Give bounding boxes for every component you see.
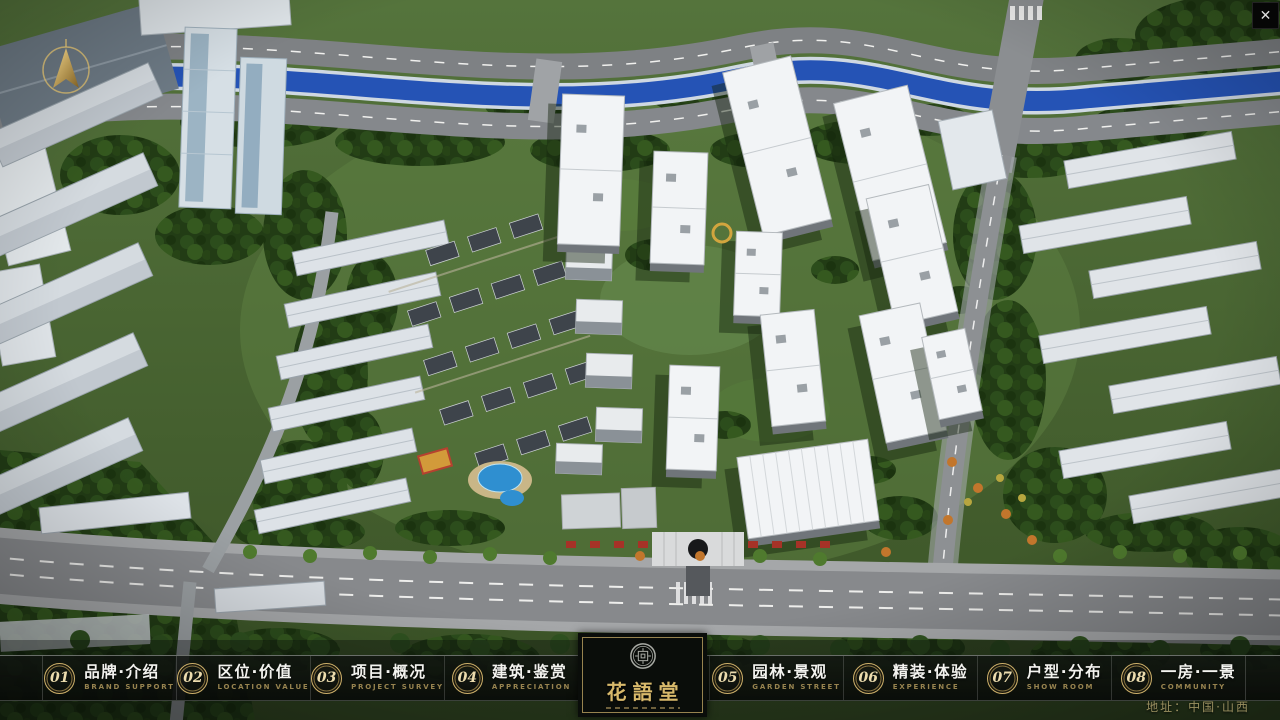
nav-number: 02: [183, 670, 202, 686]
nav-item-location-value[interactable]: 02 区位·价值LOCATION VALUE: [177, 656, 311, 700]
nav-label-en: COMMUNITY: [1161, 684, 1226, 691]
nav-label-en: SHOW ROOM: [1027, 684, 1094, 691]
nav-label-en: LOCATION VALUE: [217, 684, 309, 691]
nav-number-badge: 02: [177, 663, 208, 694]
nav-label-cn: 品牌·介绍: [84, 665, 159, 681]
nav-number: 04: [458, 670, 477, 686]
nav-left-pad: [0, 656, 43, 700]
nav-label-en: GARDEN STREET: [752, 684, 840, 691]
nav-number: 06: [859, 670, 878, 686]
nav-item-room-view[interactable]: 08 一房·一景COMMUNITY: [1111, 656, 1245, 700]
compass: [34, 36, 98, 100]
logo-ornament: [606, 707, 680, 709]
project-name: 花語堂: [601, 676, 685, 705]
nav-label-cn: 区位·价值: [217, 665, 292, 681]
nav-number-badge: 01: [44, 663, 75, 694]
nav-item-brand-intro[interactable]: 01 品牌·介绍BRAND SUPPORT: [43, 656, 177, 700]
nav-label-cn: 一房·一景: [1161, 665, 1236, 681]
nav-label-cn: 精装·体验: [893, 665, 968, 681]
nav-item-project-survey[interactable]: 03 项目·概况PROJECT SURVEY: [311, 656, 445, 700]
nav-number-badge: 03: [311, 663, 342, 694]
nav-number: 01: [50, 670, 69, 686]
close-button[interactable]: ✕: [1252, 2, 1279, 29]
nav-item-architecture[interactable]: 04 建筑·鉴赏APPRECIATION: [445, 656, 579, 700]
nav-label-cn: 园林·景观: [752, 665, 827, 681]
nav-group-right: 05 园林·景观GARDEN STREET 06 精装·体验EXPERIENCE…: [709, 656, 1245, 700]
nav-label-cn: 户型·分布: [1027, 665, 1102, 681]
vignette: [0, 0, 1280, 720]
master-plan-render: [0, 0, 1280, 720]
compass-north-arrow-icon: [53, 48, 79, 88]
nav-group-left: 01 品牌·介绍BRAND SUPPORT 02 区位·价值LOCATION V…: [43, 656, 579, 700]
nav-number-badge: 06: [853, 663, 884, 694]
nav-number-badge: 05: [712, 663, 743, 694]
nav-item-unit-layouts[interactable]: 07 户型·分布SHOW ROOM: [977, 656, 1111, 700]
presentation-screen: ✕ 01 品牌·介绍BRAND SUPPORT 02 区位·价值LOCATION…: [0, 0, 1280, 720]
nav-label-en: EXPERIENCE: [893, 684, 960, 691]
nav-number-badge: 04: [452, 663, 483, 694]
nav-item-interior-experience[interactable]: 06 精装·体验EXPERIENCE: [843, 656, 977, 700]
nav-number: 03: [317, 670, 336, 686]
seal-emblem-icon: [629, 642, 657, 674]
nav-label-cn: 建筑·鉴赏: [492, 665, 567, 681]
nav-number: 07: [993, 670, 1012, 686]
nav-right-pad: [1245, 656, 1280, 700]
nav-number: 05: [718, 670, 737, 686]
nav-label-cn: 项目·概况: [351, 665, 426, 681]
nav-number-badge: 08: [1121, 663, 1152, 694]
project-logo[interactable]: 花語堂: [578, 633, 707, 717]
nav-label-en: APPRECIATION: [492, 684, 571, 691]
nav-number-badge: 07: [987, 663, 1018, 694]
nav-number: 08: [1127, 670, 1146, 686]
project-logo-frame: 花語堂: [582, 637, 703, 713]
nav-label-en: BRAND SUPPORT: [84, 684, 174, 691]
nav-label-en: PROJECT SURVEY: [351, 684, 444, 691]
address-text: 地址：中国·山西: [1146, 698, 1250, 715]
nav-item-garden-landscape[interactable]: 05 园林·景观GARDEN STREET: [709, 656, 843, 700]
